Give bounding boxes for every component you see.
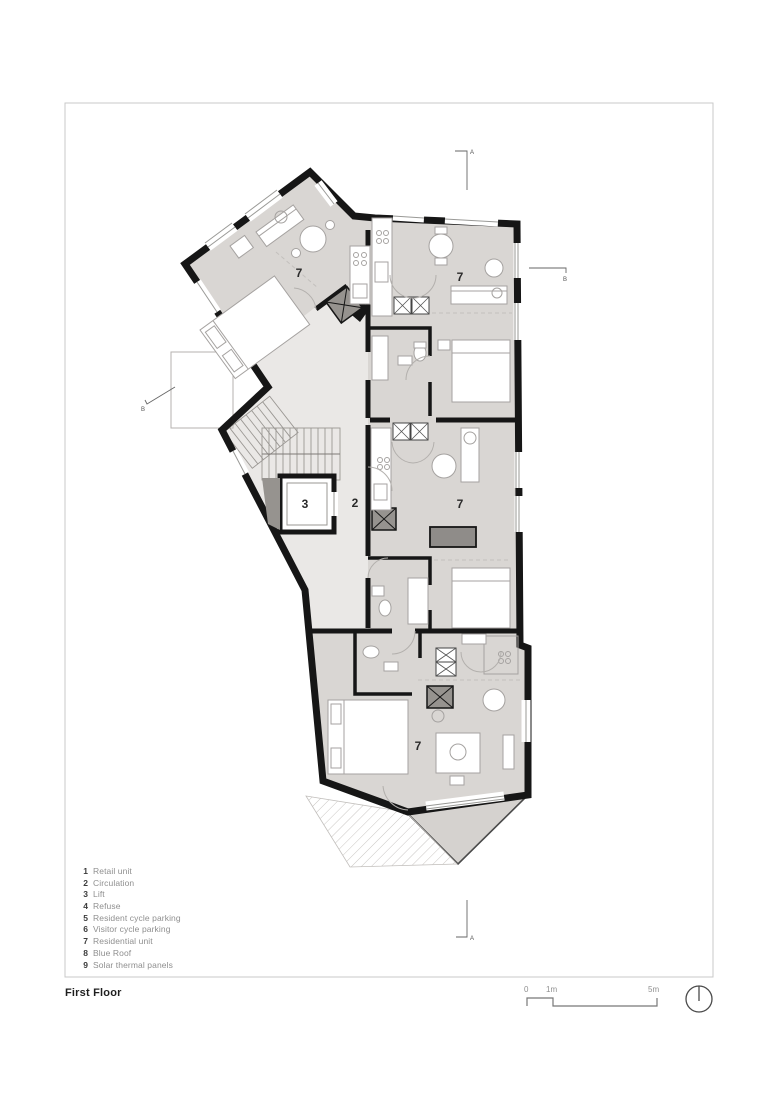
legend-item-lift: 3Lift [78,889,181,901]
scale-label-one: 1m [546,985,557,994]
section-marker-b-right: B [563,277,567,283]
legend: 1Retail unit 2Circulation 3Lift 4Refuse … [78,866,181,971]
legend-item-resident-cycle: 5Resident cycle parking [78,913,181,925]
legend-item-number: 7 [78,936,88,946]
legend-item-number: 3 [78,889,88,899]
section-marker-a-top: A [470,150,474,156]
legend-item-blue-roof: 8Blue Roof [78,948,181,960]
room-label-residential-s: 7 [415,739,422,753]
legend-item-label: Visitor cycle parking [93,924,171,934]
drawing-sheet: 7 7 3 2 7 7 A A B B 0 1m 5m 1Retail unit… [0,0,778,1100]
legend-item-visitor-cycle: 6Visitor cycle parking [78,924,181,936]
room-label-lift: 3 [302,497,309,511]
legend-item-number: 4 [78,901,88,911]
legend-item-number: 2 [78,878,88,888]
legend-item-label: Blue Roof [93,948,131,958]
section-marker-a-bottom: A [470,936,474,942]
room-label-residential-ne: 7 [457,270,464,284]
legend-item-label: Solar thermal panels [93,960,173,970]
legend-item-number: 6 [78,924,88,934]
legend-item-number: 8 [78,948,88,958]
scale-label-zero: 0 [524,985,529,994]
lift-shaft [262,476,338,532]
legend-item-refuse: 4Refuse [78,901,181,913]
scale-bar: 0 1m 5m [524,985,659,1006]
legend-item-label: Refuse [93,901,121,911]
legend-item-label: Retail unit [93,866,132,876]
legend-item-retail: 1Retail unit [78,866,181,878]
section-marker-b-left: B [141,407,145,413]
legend-item-circulation: 2Circulation [78,878,181,890]
legend-item-residential: 7Residential unit [78,936,181,948]
scale-label-five: 5m [648,985,659,994]
legend-item-label: Resident cycle parking [93,913,181,923]
room-label-residential-mid: 7 [457,497,464,511]
legend-item-number: 9 [78,960,88,970]
legend-item-label: Residential unit [93,936,153,946]
room-label-circulation: 2 [352,496,359,510]
page-title: First Floor [65,987,122,999]
legend-item-label: Circulation [93,878,134,888]
north-arrow-icon [686,986,712,1012]
legend-item-number: 5 [78,913,88,923]
legend-item-label: Lift [93,889,105,899]
room-label-residential-nw: 7 [296,266,303,280]
legend-item-solar: 9Solar thermal panels [78,960,181,972]
legend-item-number: 1 [78,866,88,876]
